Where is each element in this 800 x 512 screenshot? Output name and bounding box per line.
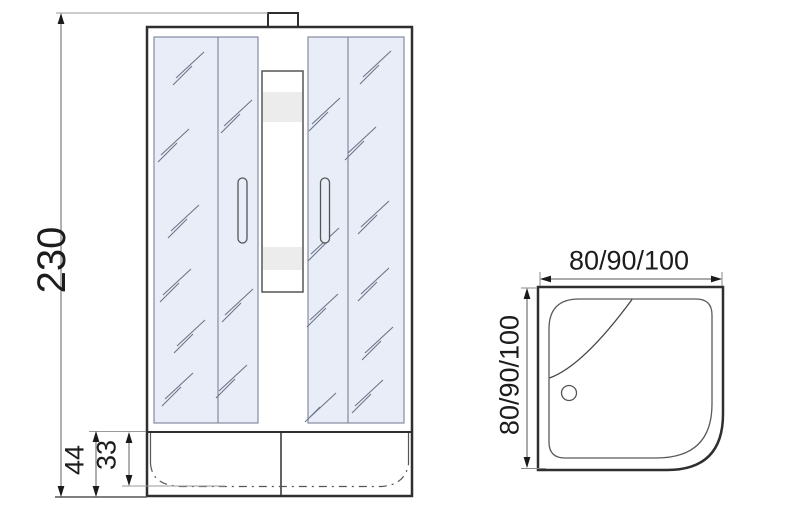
arrow-up-icon — [58, 13, 65, 24]
top-view-depth-label: 80/90/100 — [497, 315, 524, 435]
height-dimension-label: 230 — [32, 227, 72, 294]
door-handle-right — [321, 178, 330, 243]
tray-depth-dimension-label: 33 — [94, 440, 121, 470]
shower-cabin-dimension-drawing: 230 44 33 80/90/100 80/90/100 — [0, 0, 800, 512]
top-view — [521, 272, 723, 470]
central-panel-top-band — [263, 92, 302, 122]
arrow-down-icon — [126, 475, 133, 486]
top-view-width-label: 80/90/100 — [569, 248, 689, 275]
arrow-down-icon — [524, 457, 531, 468]
apron-height-dimension-label: 44 — [62, 445, 89, 475]
tray-outline — [538, 287, 723, 470]
arrow-right-icon — [711, 276, 722, 283]
front-view — [55, 13, 412, 497]
drain-icon — [562, 386, 577, 401]
door-handle-left — [238, 178, 247, 243]
arrow-up-icon — [126, 432, 133, 443]
arrow-left-icon — [540, 276, 551, 283]
central-back-panel — [262, 71, 303, 292]
arrow-up-icon — [524, 288, 531, 299]
central-panel-bottom-band — [263, 247, 302, 270]
roof-cap — [268, 13, 298, 27]
arrow-down-icon — [58, 486, 65, 497]
arrow-down-icon — [93, 486, 100, 497]
